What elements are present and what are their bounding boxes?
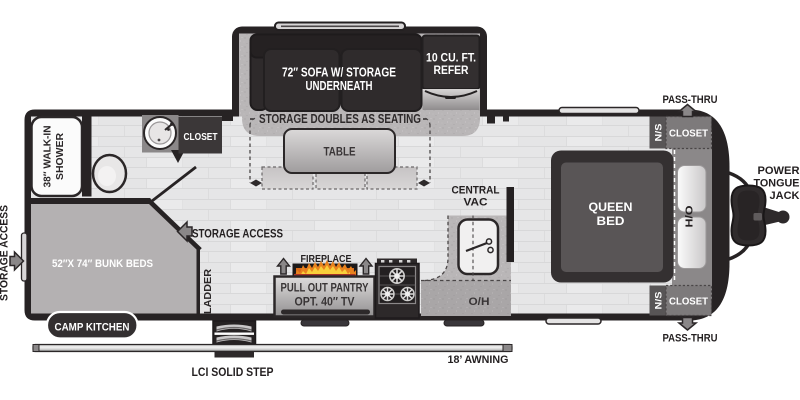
- svg-text:CLOSET: CLOSET: [669, 296, 709, 308]
- svg-text:PASS-THRU: PASS-THRU: [663, 94, 718, 106]
- svg-text:PULL OUT PANTRY: PULL OUT PANTRY: [281, 283, 369, 295]
- svg-text:VAC: VAC: [464, 197, 488, 209]
- svg-text:CLOSET: CLOSET: [184, 131, 218, 143]
- svg-text:STORAGE ACCESS: STORAGE ACCESS: [192, 227, 283, 241]
- svg-text:POWER: POWER: [758, 165, 800, 177]
- svg-text:LCI SOLID STEP: LCI SOLID STEP: [192, 365, 274, 379]
- svg-text:REFER: REFER: [434, 65, 470, 77]
- svg-text:18’ AWNING: 18’ AWNING: [448, 354, 509, 366]
- svg-text:38″ WALK-IN: 38″ WALK-IN: [43, 126, 54, 188]
- svg-text:N/S: N/S: [654, 292, 664, 310]
- svg-text:72″ SOFA W/ STORAGE: 72″ SOFA W/ STORAGE: [282, 66, 396, 80]
- svg-text:O/H: O/H: [469, 296, 490, 308]
- svg-text:TONGUE: TONGUE: [754, 178, 800, 190]
- svg-text:STORAGE ACCESS: STORAGE ACCESS: [0, 205, 11, 301]
- svg-text:OPT. 40″ TV: OPT. 40″ TV: [295, 297, 355, 309]
- svg-text:JACK: JACK: [770, 190, 800, 202]
- svg-text:PASS-THRU: PASS-THRU: [663, 333, 718, 345]
- svg-text:SHOWER: SHOWER: [55, 132, 66, 180]
- svg-text:LADDER: LADDER: [202, 269, 214, 314]
- svg-text:BED: BED: [597, 216, 625, 228]
- svg-text:TABLE: TABLE: [324, 147, 356, 159]
- svg-text:CENTRAL: CENTRAL: [452, 185, 500, 197]
- svg-text:STORAGE DOUBLES AS SEATING: STORAGE DOUBLES AS SEATING: [259, 112, 421, 126]
- svg-text:CLOSET: CLOSET: [669, 128, 709, 140]
- svg-text:QUEEN: QUEEN: [589, 202, 633, 214]
- svg-text:52″X 74″ BUNK BEDS: 52″X 74″ BUNK BEDS: [52, 258, 153, 270]
- svg-text:H/O: H/O: [685, 205, 696, 227]
- svg-text:UNDERNEATH: UNDERNEATH: [306, 79, 373, 93]
- svg-text:10 CU. FT.: 10 CU. FT.: [426, 53, 476, 65]
- svg-text:CAMP KITCHEN: CAMP KITCHEN: [55, 322, 130, 334]
- svg-text:N/S: N/S: [654, 124, 664, 142]
